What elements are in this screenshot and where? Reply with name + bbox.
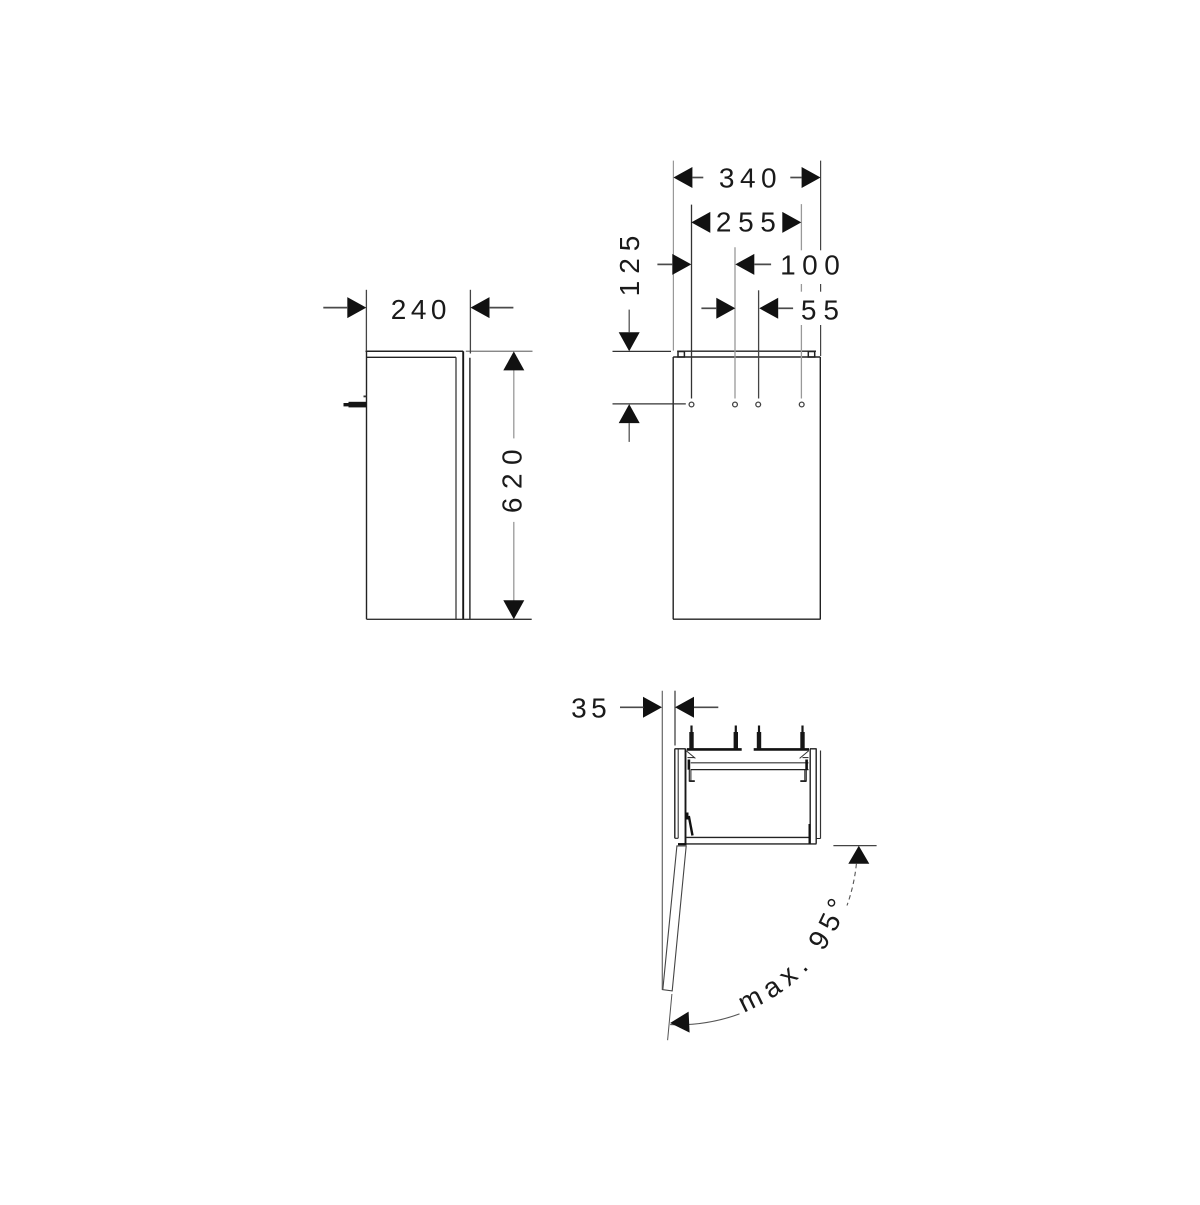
svg-text:620: 620: [497, 441, 528, 513]
svg-text:35: 35: [571, 692, 611, 723]
svg-text:100: 100: [780, 250, 846, 281]
svg-text:240: 240: [391, 294, 451, 325]
svg-text:255: 255: [716, 206, 783, 237]
svg-text:55: 55: [801, 295, 846, 326]
svg-text:125: 125: [614, 229, 645, 297]
svg-text:340: 340: [719, 163, 782, 194]
